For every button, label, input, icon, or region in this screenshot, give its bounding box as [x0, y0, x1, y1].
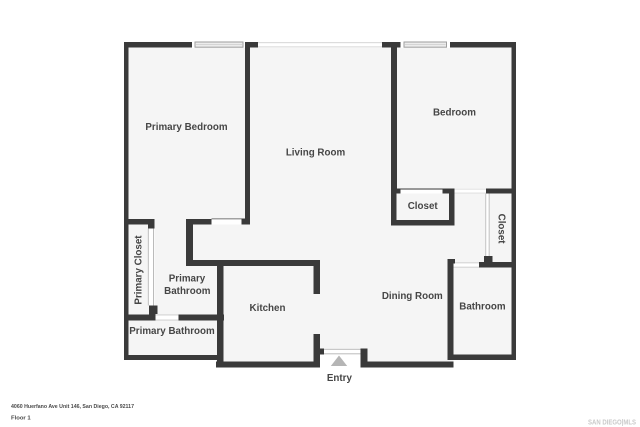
svg-text:Entry: Entry	[327, 373, 353, 384]
svg-text:Closet: Closet	[496, 214, 507, 245]
svg-text:Closet: Closet	[408, 201, 439, 212]
svg-text:Primary Bedroom: Primary Bedroom	[145, 122, 228, 133]
svg-text:4060 Huerfano Ave Unit 146, Sa: 4060 Huerfano Ave Unit 146, San Diego, C…	[11, 404, 135, 410]
svg-text:Living Room: Living Room	[286, 147, 346, 158]
svg-text:Bathroom: Bathroom	[459, 302, 506, 313]
svg-text:SAN DIEGO|MLS: SAN DIEGO|MLS	[588, 420, 636, 427]
svg-text:Kitchen: Kitchen	[250, 303, 286, 314]
svg-text:Primary Bathroom: Primary Bathroom	[129, 326, 215, 337]
svg-text:Primary: Primary	[169, 274, 206, 285]
svg-text:Primary Closet: Primary Closet	[134, 235, 145, 305]
svg-text:Bathroom: Bathroom	[164, 286, 211, 297]
svg-text:Bedroom: Bedroom	[433, 107, 476, 118]
svg-text:Floor 1: Floor 1	[11, 415, 31, 421]
svg-text:Dining Room: Dining Room	[382, 291, 443, 302]
